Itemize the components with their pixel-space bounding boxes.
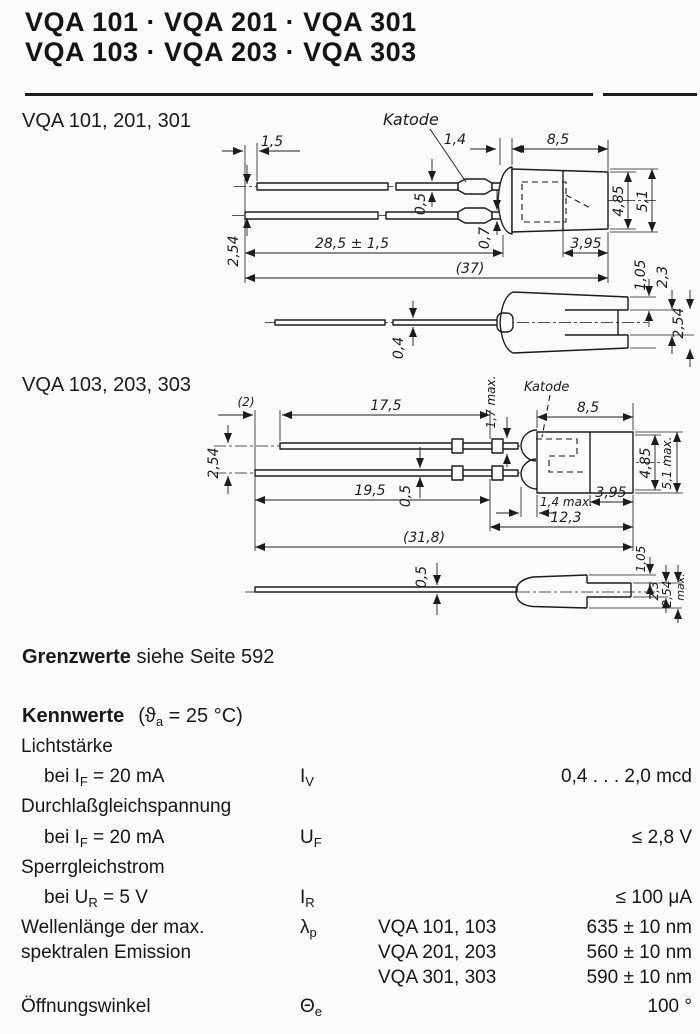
dim-overall-len: (37) <box>456 261 485 277</box>
dim-crimp-h: 1,7 max. <box>484 376 498 429</box>
dim-tab-h: 2,3 <box>655 266 671 288</box>
dim-lead-th: 0,5 <box>398 485 414 507</box>
char-value: ≤ 2,8 V <box>632 827 692 849</box>
char-type-list: VQA 101, 103 <box>378 917 496 939</box>
kennwerte-heading: Kennwerte(ϑa = 25 °C) <box>22 705 243 728</box>
dim-front-len: 3,95 <box>595 485 626 501</box>
char-label: Wellenlänge der max. <box>21 917 204 939</box>
char-value: 635 ± 10 nm <box>587 917 693 939</box>
side-lead <box>393 320 500 325</box>
lead-top-crimp <box>492 439 503 453</box>
lead-top <box>463 443 492 449</box>
side-lead <box>255 587 517 592</box>
lead-bottom-crimp <box>458 208 492 223</box>
lead-top <box>280 443 452 449</box>
char-condition: bei IF = 20 mA <box>44 827 164 849</box>
dim-side-lead-th: 0,5 <box>414 566 430 588</box>
dim-side-body-w: 2,54 <box>671 307 687 338</box>
row-oeffnungswinkel: Öffnungswinkel Θe 100 ° <box>0 996 700 1022</box>
row-durchlass: bei IF = 20 mA UF ≤ 2,8 V <box>0 827 700 853</box>
char-symbol: IV <box>300 766 314 788</box>
dim-lead-th-top: 0,5 <box>413 193 429 215</box>
row-lichtstaerke-group: Lichtstärke <box>0 736 700 762</box>
char-type-list: VQA 201, 203 <box>378 942 496 964</box>
dim-lead-pitch: 2,54 <box>206 447 222 478</box>
title-line-2: VQA 103 · VQA 203 · VQA 303 <box>25 37 417 67</box>
lead-bottom-crimp <box>452 466 463 480</box>
dim-body-h1: 4,85 <box>638 447 654 478</box>
lens-bumps <box>521 430 537 489</box>
lead-top-crimp <box>452 439 463 453</box>
dim-lead-len: 28,5 ± 1,5 <box>315 236 389 252</box>
limits-note: Grenzwerte siehe Seite 592 <box>22 646 274 669</box>
lead-top <box>396 183 458 190</box>
dim-side-body-w-max: max. <box>674 573 687 600</box>
dim-body-len: 8,5 <box>547 132 569 148</box>
limits-note-rest: siehe Seite 592 <box>131 646 274 668</box>
dim-side-body-w: 2,54 <box>660 581 674 608</box>
lead-top <box>257 183 388 190</box>
char-value: 590 ± 10 nm <box>587 967 693 989</box>
title-line-1: VQA 101 · VQA 201 · VQA 301 <box>25 7 417 37</box>
lead-top <box>503 443 518 449</box>
char-type-list: VQA 301, 303 <box>378 967 496 989</box>
side-body-outline <box>516 575 631 608</box>
body-flange <box>498 167 512 234</box>
lead-bottom-crimp <box>492 466 503 480</box>
char-value: 100 ° <box>647 996 692 1018</box>
dim-lead-offset: (2) <box>238 395 255 409</box>
dim-lead-pitch: 2,54 <box>226 235 242 266</box>
row-lichtstaerke: bei IF = 20 mA IV 0,4 . . . 2,0 mcd <box>0 766 700 792</box>
dim-body-total-len: 12,3 <box>550 510 581 526</box>
dim-step-h: 1,05 <box>634 546 648 573</box>
dim-body-len: 8,5 <box>577 400 599 416</box>
kennwerte-title: Kennwerte <box>22 705 124 727</box>
char-label: spektralen Emission <box>21 942 191 964</box>
char-condition: bei UR = 5 V <box>44 887 148 909</box>
char-value: 0,4 . . . 2,0 mcd <box>561 766 692 788</box>
drawing-vqa103: Katode (2) 17,5 1,7 max. 8,5 2,54 0,5 19… <box>0 375 700 645</box>
char-label: Sperrgleichstrom <box>21 857 165 879</box>
body-outline <box>537 432 633 493</box>
dim-lead-bot-len: 19,5 <box>354 483 385 499</box>
divider-rule <box>25 93 697 96</box>
dim-front-len: 3,95 <box>570 236 601 252</box>
kennwerte-condition: (ϑa = 25 °C) <box>138 705 243 727</box>
char-label: Durchlaßgleichspannung <box>21 796 231 818</box>
side-lead <box>275 320 385 325</box>
dim-flange: 1,4 <box>444 132 466 148</box>
dim-flange: 1,4 max. <box>540 495 593 509</box>
lead-bottom <box>255 470 452 476</box>
char-condition: bei IF = 20 mA <box>44 766 164 788</box>
lead-top-crimp <box>458 179 492 194</box>
lead-bottom <box>463 470 492 476</box>
lead-bottom <box>245 212 378 219</box>
dim-body-h1: 4,85 <box>611 185 627 216</box>
char-symbol: Θe <box>300 996 322 1018</box>
char-symbol: λp <box>300 917 317 939</box>
dim-lead-th-bot: 0,7 <box>477 227 493 249</box>
extension-lines <box>245 138 694 348</box>
char-value: 560 ± 10 nm <box>587 942 693 964</box>
drawing-vqa101: Katode 1,5 1,4 8,5 0,5 0,7 2,54 28,5 ± 1… <box>0 105 700 375</box>
dim-body-h2: 5,1 max. <box>660 437 674 490</box>
row-wellenlaenge-2: spektralen Emission VQA 201, 203 560 ± 1… <box>0 942 700 968</box>
row-durchlass-group: Durchlaßgleichspannung <box>0 796 700 822</box>
char-symbol: UF <box>300 827 322 849</box>
dim-body-h2: 5,1 <box>635 190 651 212</box>
dim-tab-h: 2,3 <box>647 581 661 600</box>
lead-bottom <box>503 470 518 476</box>
katode-label: Katode <box>383 110 439 129</box>
row-wellenlaenge-1: Wellenlänge der max. λp VQA 101, 103 635… <box>0 917 700 943</box>
row-wellenlaenge-3: VQA 301, 303 590 ± 10 nm <box>0 967 700 993</box>
char-symbol: IR <box>300 887 315 909</box>
char-label: Öffnungswinkel <box>21 996 151 1018</box>
limits-note-bold: Grenzwerte <box>22 646 131 668</box>
dim-lead-top-len: 17,5 <box>370 398 401 414</box>
char-value: ≤ 100 μA <box>616 887 692 909</box>
dim-overall-len: (31,8) <box>403 530 445 546</box>
row-sperr: bei UR = 5 V IR ≤ 100 μA <box>0 887 700 913</box>
char-label: Lichtstärke <box>21 736 113 758</box>
row-sperr-group: Sperrgleichstrom <box>0 857 700 883</box>
datasheet-page: VQA 101 · VQA 201 · VQA 301 VQA 103 · VQ… <box>0 0 700 1034</box>
page-title: VQA 101 · VQA 201 · VQA 301 VQA 103 · VQ… <box>25 7 417 67</box>
dim-lead-offset: 1,5 <box>261 134 283 150</box>
katode-leader-line <box>542 395 550 437</box>
dim-side-lead-th: 0,4 <box>391 337 407 359</box>
katode-label: Katode <box>524 380 569 395</box>
dim-step-h: 1,05 <box>633 259 649 290</box>
